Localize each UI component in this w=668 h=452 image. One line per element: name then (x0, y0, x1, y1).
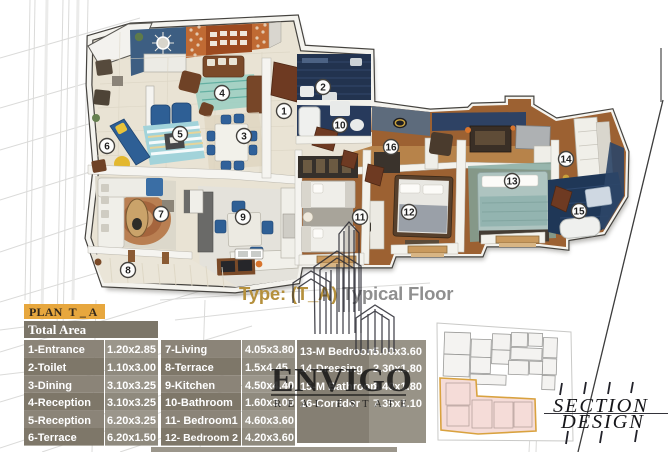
svg-text:4: 4 (219, 89, 225, 100)
svg-text:PLAN T _ A: PLAN T _ A (29, 305, 98, 319)
svg-text:4.05x3.80: 4.05x3.80 (245, 344, 294, 356)
svg-text:DESIGN: DESIGN (560, 411, 645, 433)
svg-text:7-Living: 7-Living (165, 344, 207, 356)
svg-text:10: 10 (334, 121, 346, 132)
svg-text:9: 9 (240, 213, 246, 224)
svg-text:1-Entrance: 1-Entrance (28, 344, 85, 356)
svg-text:2-Toilet: 2-Toilet (28, 362, 67, 374)
svg-text:5-Reception: 5-Reception (28, 415, 91, 427)
svg-text:6.20x3.25: 6.20x3.25 (107, 415, 156, 427)
svg-text:1.20x2.85: 1.20x2.85 (107, 344, 156, 356)
svg-text:ENVIGO: ENVIGO (271, 362, 413, 399)
svg-text:13: 13 (506, 177, 518, 188)
svg-text:4-Reception: 4-Reception (28, 397, 91, 409)
svg-text:10-Bathroom: 10-Bathroom (165, 397, 233, 409)
svg-text:5: 5 (177, 130, 183, 141)
svg-text:1: 1 (281, 107, 287, 118)
svg-text:6.20x1.50: 6.20x1.50 (107, 432, 156, 444)
svg-text:13-M Bedroom: 13-M Bedroom (300, 346, 377, 358)
svg-text:7: 7 (158, 210, 164, 221)
svg-text:5.00x3.60: 5.00x3.60 (373, 346, 422, 358)
svg-text:1.10x3.00: 1.10x3.00 (107, 362, 156, 374)
svg-text:11: 11 (355, 213, 366, 224)
svg-text:6-Terrace: 6-Terrace (28, 432, 77, 444)
svg-text:3-Dining: 3-Dining (28, 380, 72, 392)
svg-text:16: 16 (385, 143, 397, 154)
svg-text:Total Area: Total Area (28, 322, 87, 337)
svg-text:9-Kitchen: 9-Kitchen (165, 380, 215, 392)
svg-text:3: 3 (241, 132, 247, 143)
svg-text:12- Bedroom 2: 12- Bedroom 2 (165, 432, 238, 444)
svg-text:11- Bedroom1: 11- Bedroom1 (165, 415, 238, 427)
svg-text:Type: (T_A) Typical Floor: Type: (T_A) Typical Floor (239, 283, 453, 304)
svg-text:2: 2 (320, 83, 326, 94)
svg-text:4.60x3.60: 4.60x3.60 (245, 415, 294, 427)
svg-text:4.20x3.60: 4.20x3.60 (245, 432, 294, 444)
svg-text:15: 15 (573, 207, 585, 218)
svg-text:14: 14 (560, 155, 572, 166)
svg-text:8: 8 (125, 266, 131, 277)
svg-text:3.10x3.25: 3.10x3.25 (107, 397, 156, 409)
svg-text:8-Terrace: 8-Terrace (165, 362, 214, 374)
svg-text:6: 6 (104, 142, 110, 153)
svg-text:12: 12 (403, 208, 415, 219)
svg-text:REAL ESTATE: REAL ESTATE (274, 399, 413, 410)
svg-text:3.10x3.25: 3.10x3.25 (107, 380, 156, 392)
